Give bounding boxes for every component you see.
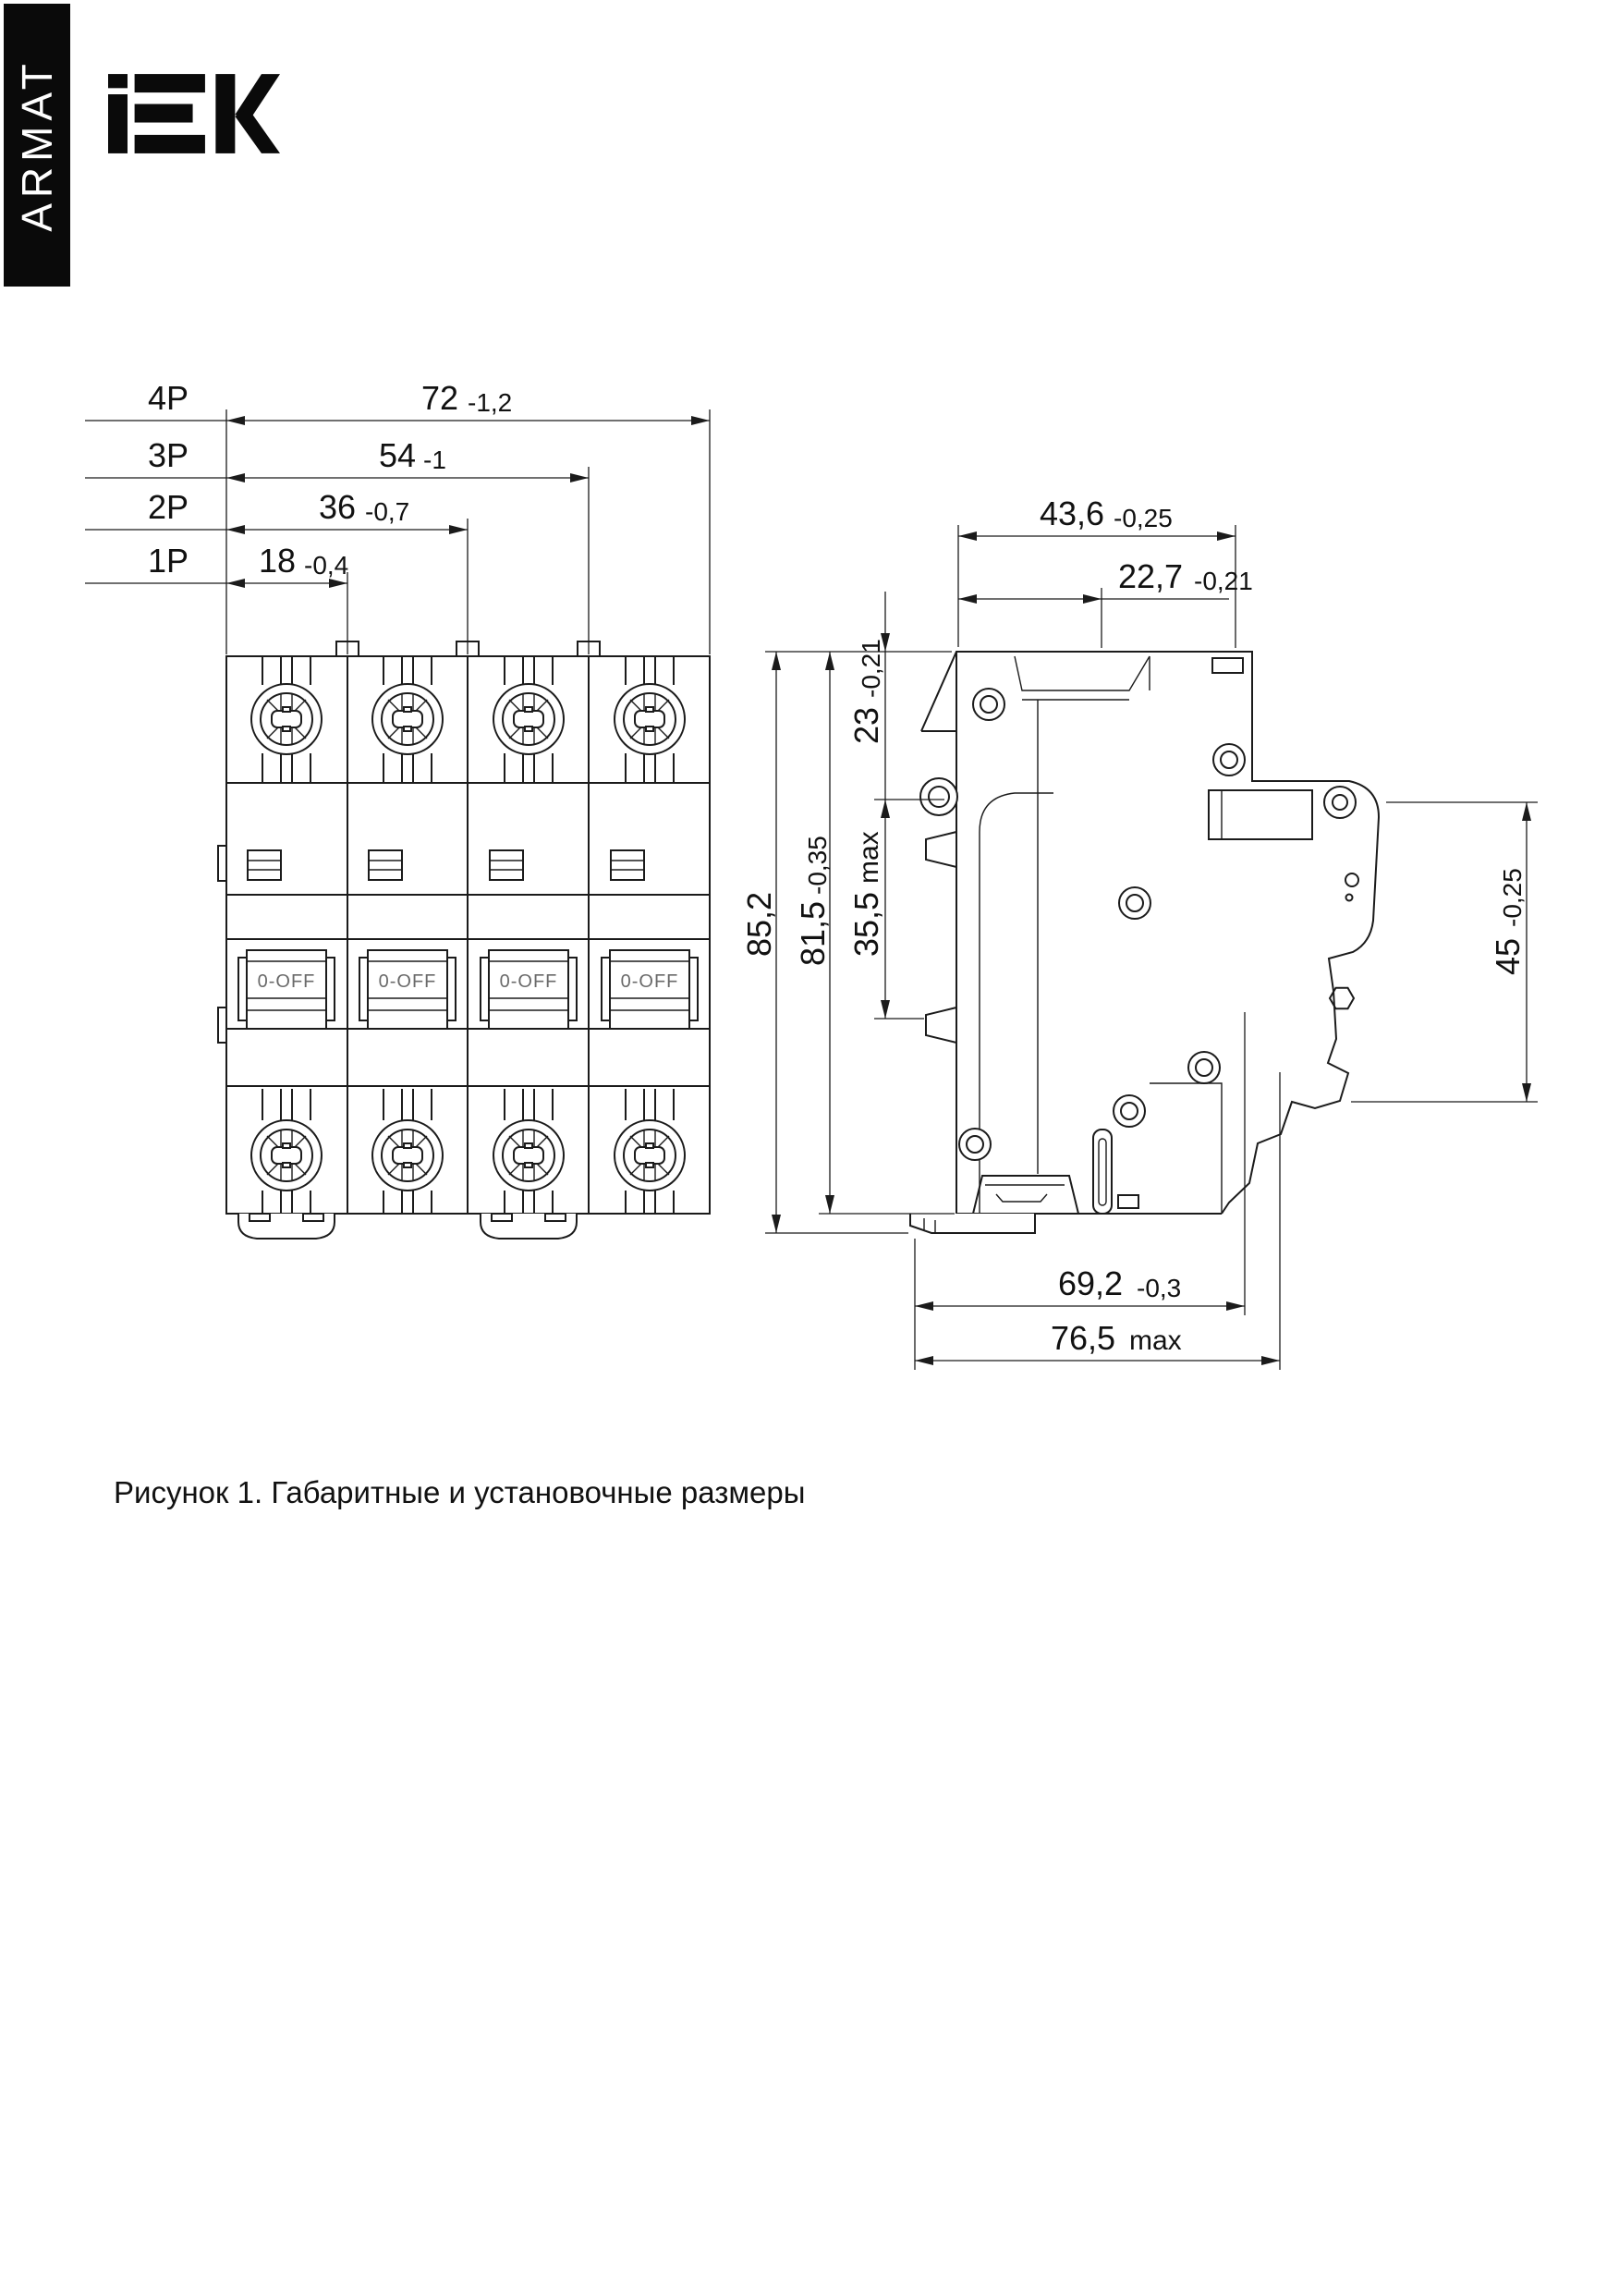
pole-label: 4P — [148, 379, 189, 417]
datasheet-page: ARMAT IEK — [0, 0, 1619, 2296]
dim-tolerance: -0,21 — [1194, 567, 1253, 595]
dim-tolerance: -0,25 — [1498, 868, 1527, 927]
dim-tolerance: -0,4 — [304, 551, 348, 580]
dim-value: 22,7 — [1118, 557, 1183, 595]
dim-front-depth: 35,5 max — [847, 800, 924, 1019]
dim-value: 36 — [319, 488, 356, 526]
dim-tolerance: -1,2 — [468, 388, 512, 417]
dim-value: 72 — [421, 379, 458, 417]
dim-suffix: max — [854, 831, 884, 884]
dim-value: 23 — [847, 707, 885, 744]
dim-value: 18 — [259, 542, 296, 580]
dim-value: 45 — [1489, 938, 1527, 975]
dim-rail-height: 45 -0,25 — [1351, 802, 1538, 1102]
dimension-drawing: 0-OFF — [0, 0, 1619, 2296]
terminal-shield-upper — [926, 832, 956, 867]
front-view-dimensions: 4P 72 -1,2 3P 54 -1 2P 36 -0,7 1 — [85, 379, 710, 654]
dim-suffix: max — [1129, 1325, 1182, 1356]
din-rail-window — [1209, 790, 1312, 839]
dim-tolerance: -0,7 — [365, 497, 409, 526]
dim-3p: 3P 54 -1 — [85, 436, 589, 482]
dim-value: 69,2 — [1058, 1264, 1123, 1302]
pole-label: 3P — [148, 436, 189, 474]
side-terminal-screw — [920, 778, 957, 815]
pole-label: 2P — [148, 488, 189, 526]
dim-4p: 4P 72 -1,2 — [85, 379, 710, 425]
dim-front-width: 22,7 -0,21 — [958, 557, 1253, 648]
dim-value: 54 — [379, 436, 416, 474]
figure-caption: Рисунок 1. Габаритные и установочные раз… — [114, 1475, 805, 1510]
dim-tolerance: -0,35 — [803, 836, 832, 895]
dim-top-depth: 23 -0,21 — [847, 592, 944, 800]
bottom-din-clip — [910, 1214, 1035, 1233]
dim-2p: 2P 36 -0,7 — [85, 488, 468, 534]
dim-value: 81,5 — [794, 901, 832, 966]
side-view-dimensions: 43,6 -0,25 22,7 -0,21 85,2 — [740, 495, 1538, 1370]
pole-label: 1P — [148, 542, 189, 580]
dim-tolerance: -1 — [423, 446, 446, 474]
dim-1p: 1P 18 -0,4 — [85, 542, 348, 588]
dim-overall-height: 85,2 — [740, 652, 952, 1233]
terminal-shield-lower — [926, 1008, 956, 1043]
side-view — [910, 652, 1379, 1233]
dim-value: 85,2 — [740, 892, 778, 957]
dim-value: 43,6 — [1040, 495, 1104, 532]
dim-tolerance: -0,3 — [1137, 1274, 1181, 1302]
dim-tolerance: -0,25 — [1114, 504, 1173, 532]
dim-value: 35,5 — [847, 892, 885, 957]
dim-value: 76,5 — [1051, 1319, 1115, 1357]
dim-tolerance: -0,21 — [857, 639, 885, 698]
front-view — [218, 641, 710, 1239]
